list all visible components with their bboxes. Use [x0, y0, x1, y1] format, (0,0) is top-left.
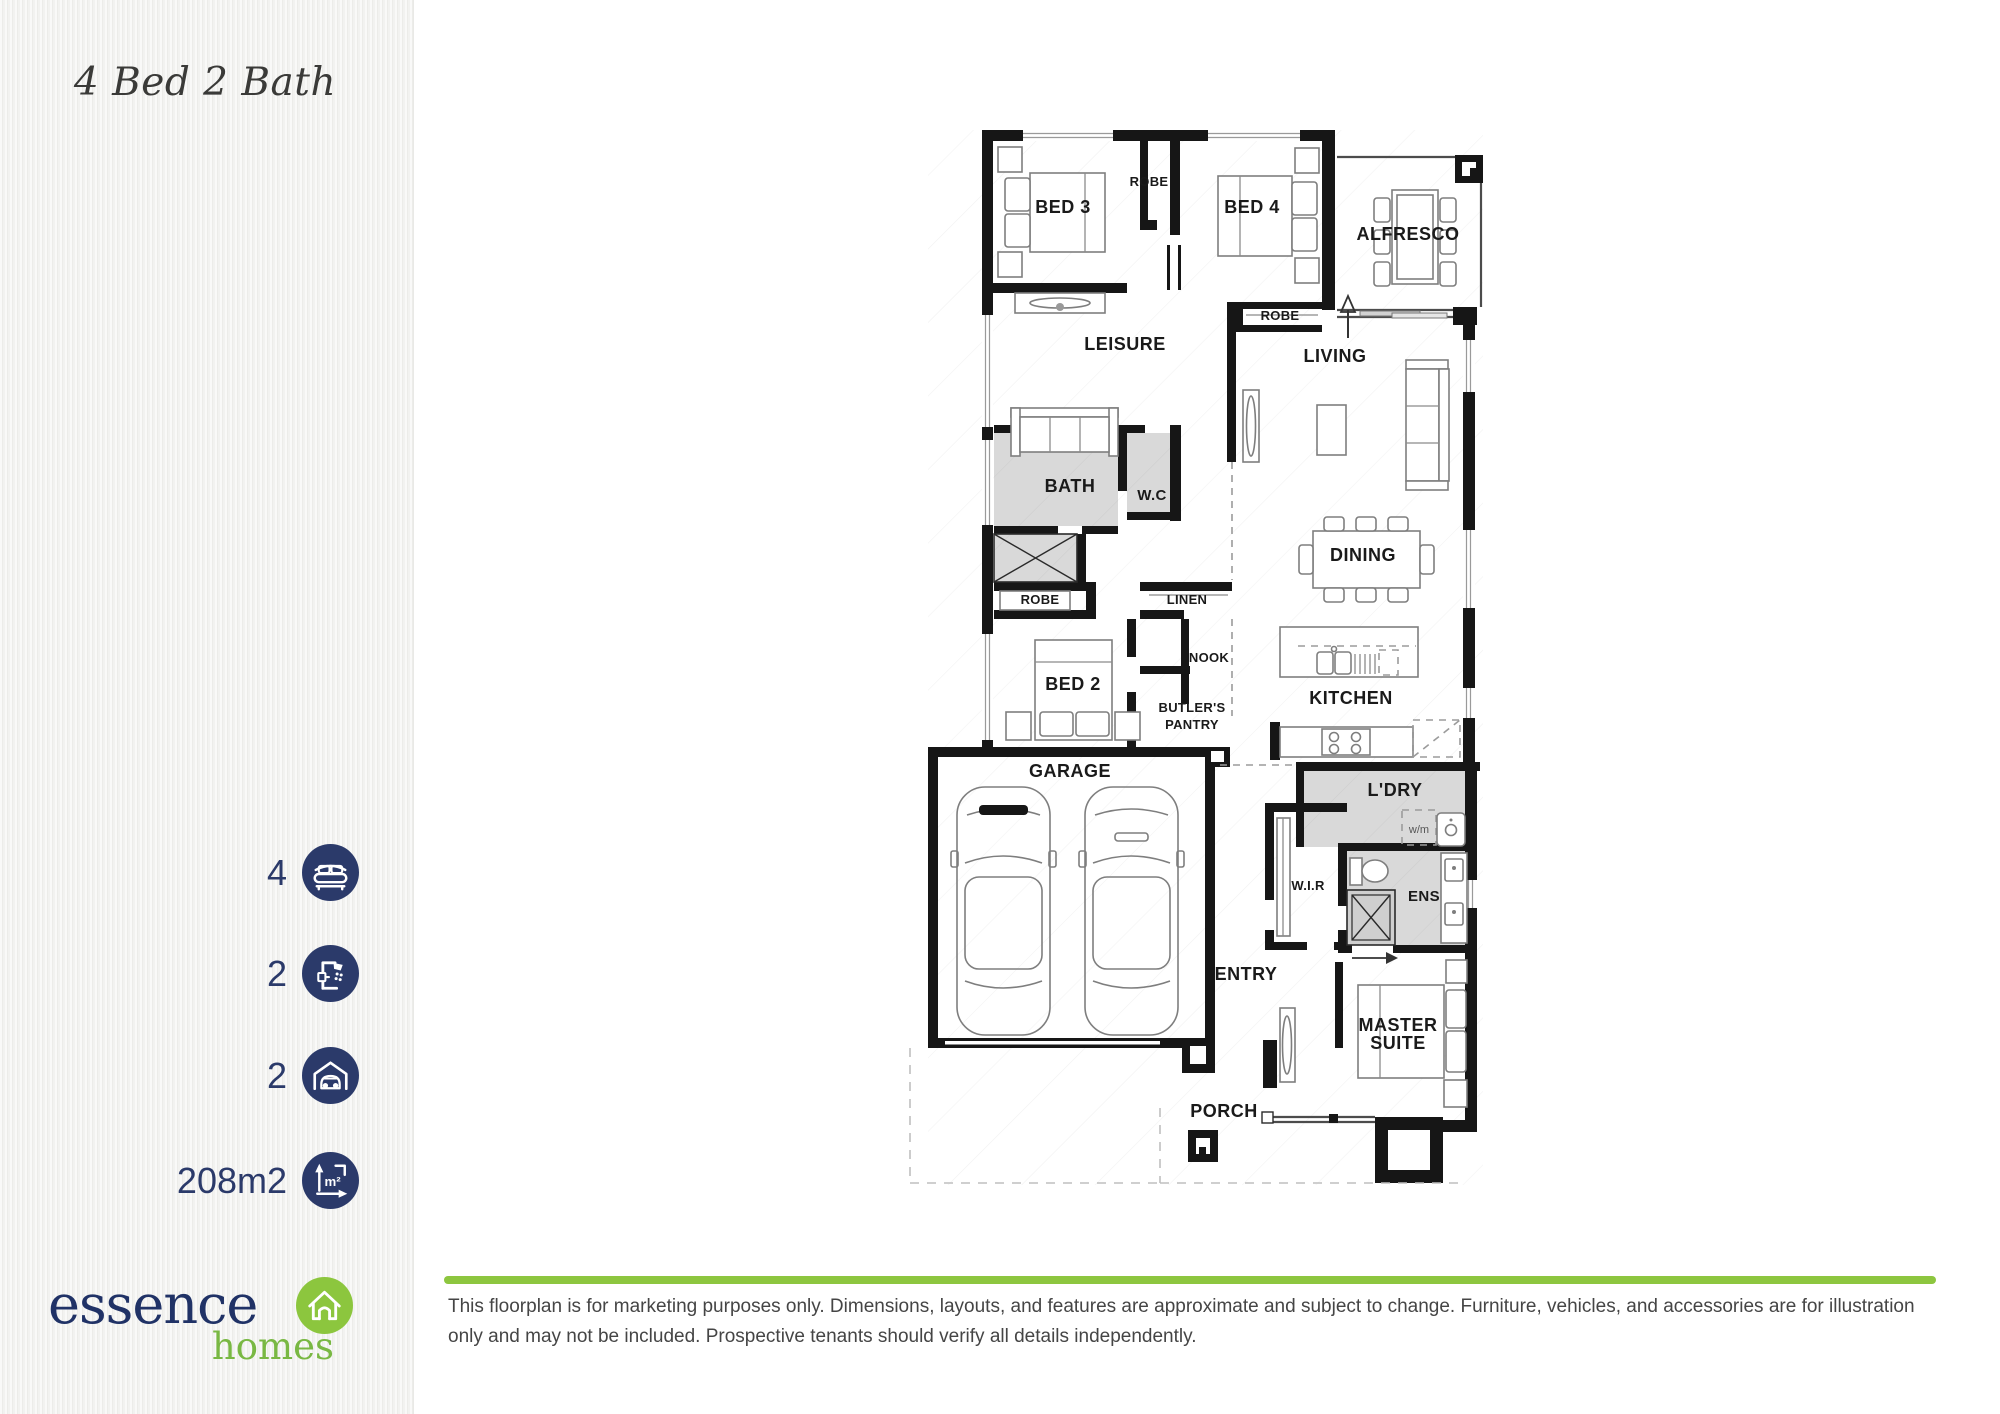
stat-bathrooms: 2 [0, 945, 413, 1002]
room-label-dining: DINING [1330, 545, 1396, 565]
floor-area-value: 208m2 [80, 1152, 287, 1209]
room-label-linen: LINEN [1167, 592, 1208, 607]
m2-glyph: m² [324, 1174, 341, 1189]
brand-suffix: homes [48, 1328, 334, 1365]
bathrooms-count: 2 [80, 945, 287, 1002]
room-label-wir: W.I.R [1291, 878, 1325, 893]
room-label-alfresco: ALFRESCO [1357, 224, 1460, 244]
garage-count: 2 [80, 1047, 287, 1104]
room-label-living: LIVING [1303, 346, 1366, 366]
room-label-bed2: BED 2 [1045, 674, 1101, 694]
room-label-master-2: SUITE [1370, 1033, 1426, 1053]
floor-area-icon: m² [302, 1152, 359, 1209]
disclaimer-text: This floorplan is for marketing purposes… [448, 1292, 1918, 1352]
room-label-nook: NOOK [1189, 650, 1230, 665]
label-washing-machine: w/m [1408, 824, 1429, 836]
bedrooms-count: 4 [80, 844, 287, 901]
stat-floor-area: 208m2 m² [0, 1152, 413, 1209]
page-title: 4 Bed 2 Bath [50, 60, 360, 105]
house-icon [296, 1277, 353, 1334]
room-label-garage: GARAGE [1029, 761, 1111, 781]
room-label-master-1: MASTER [1359, 1015, 1438, 1035]
room-label-bed3: BED 3 [1035, 197, 1091, 217]
sidebar: 4 Bed 2 Bath 4 2 [0, 0, 414, 1414]
garage-car-icon [302, 1047, 359, 1104]
room-label-entry: ENTRY [1215, 964, 1278, 984]
room-label-ldry: L'DRY [1367, 780, 1422, 800]
room-label-butlers-2: PANTRY [1165, 717, 1219, 732]
room-label-ens: ENS [1408, 888, 1440, 905]
room-label-robe-bed4: ROBE [1261, 308, 1300, 323]
stat-garage: 2 [0, 1047, 413, 1104]
brand-name: essence [48, 1278, 288, 1332]
room-label-leisure: LEISURE [1084, 334, 1166, 354]
marketing-floorplan-page: { "sidebar": { "title": "4 Bed 2 Bath", … [0, 0, 2000, 1414]
green-divider [444, 1276, 1936, 1284]
stat-bedrooms: 4 [0, 844, 413, 901]
bed-icon [302, 844, 359, 901]
brand-logo: essence homes [0, 1270, 413, 1400]
room-label-porch: PORCH [1190, 1101, 1258, 1121]
room-label-robe-mid: ROBE [1021, 592, 1060, 607]
floorplan: BED 3 ROBE BED 4 ALFRESCO ROBE LEISURE L… [900, 120, 1500, 1200]
room-label-wc: W.C [1137, 487, 1167, 504]
room-label-bed4: BED 4 [1224, 197, 1280, 217]
room-label-kitchen: KITCHEN [1309, 688, 1393, 708]
room-label-butlers-1: BUTLER'S [1159, 700, 1226, 715]
shower-icon [302, 945, 359, 1002]
room-label-robe-top: ROBE [1130, 174, 1169, 189]
room-label-bath: BATH [1045, 476, 1096, 496]
